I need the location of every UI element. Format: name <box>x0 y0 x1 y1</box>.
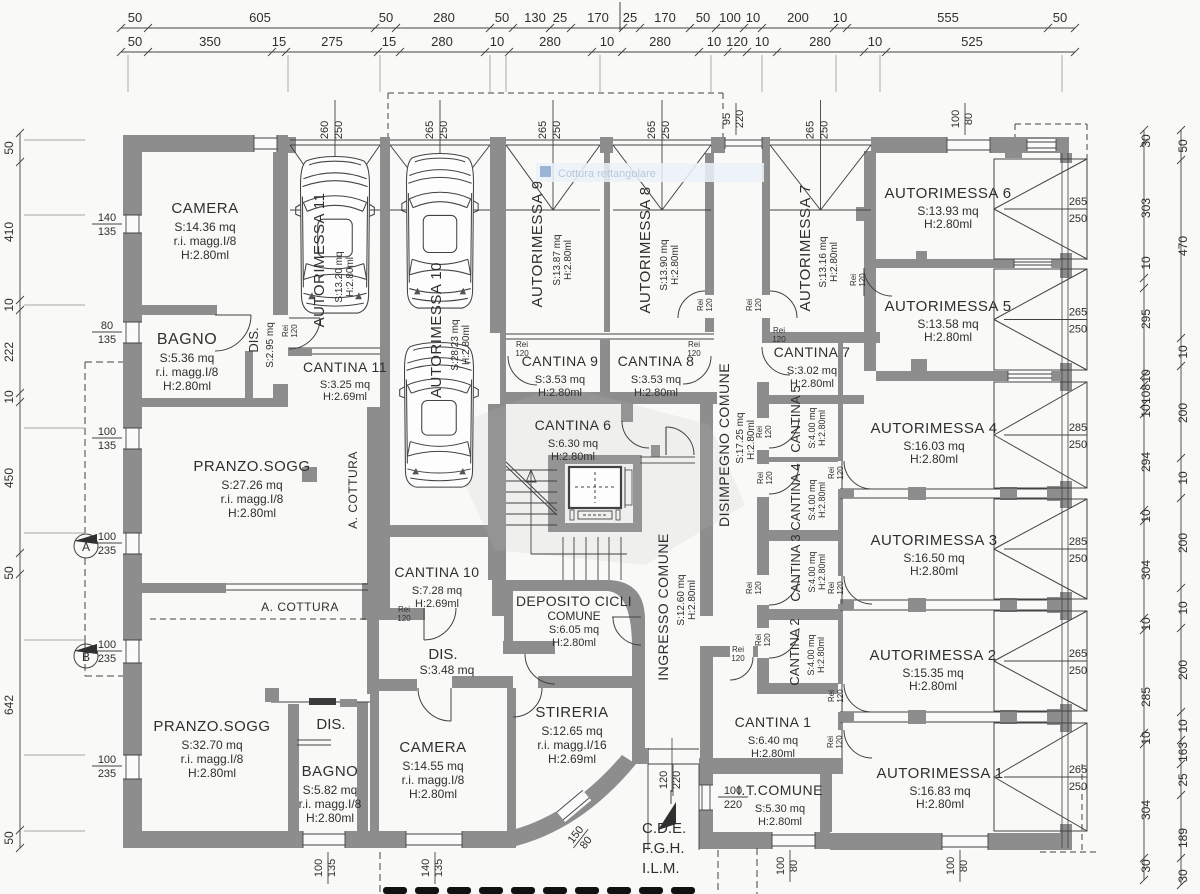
svg-text:H:2.80ml: H:2.80ml <box>829 242 840 282</box>
svg-text:H:2.80ml: H:2.80ml <box>228 506 276 520</box>
svg-text:CANTINA 11: CANTINA 11 <box>303 359 387 375</box>
svg-text:120: 120 <box>290 324 299 338</box>
svg-text:108: 108 <box>1139 384 1153 404</box>
svg-text:280: 280 <box>433 10 455 25</box>
svg-text:200: 200 <box>1176 533 1190 553</box>
svg-text:r.i. magg.I/8: r.i. magg.I/8 <box>299 797 362 811</box>
svg-text:10: 10 <box>2 298 16 312</box>
svg-text:Rei: Rei <box>754 634 763 646</box>
svg-text:Rei: Rei <box>849 274 858 286</box>
svg-text:Rei: Rei <box>398 605 410 614</box>
svg-text:H:2.80ml: H:2.80ml <box>538 387 582 399</box>
svg-text:AUTORIMESSA 7: AUTORIMESSA 7 <box>797 184 814 311</box>
svg-text:642: 642 <box>2 695 16 715</box>
svg-text:I.T.COMUNE: I.T.COMUNE <box>737 782 823 798</box>
svg-text:265: 265 <box>805 121 817 139</box>
svg-text:135: 135 <box>98 334 116 346</box>
svg-text:50: 50 <box>2 566 16 580</box>
svg-text:100: 100 <box>98 754 116 766</box>
svg-text:Rei: Rei <box>756 472 765 484</box>
svg-text:PRANZO.SOGG: PRANZO.SOGG <box>153 718 270 735</box>
svg-text:H:2.80ml: H:2.80ml <box>461 325 472 365</box>
svg-text:S:6.30 mq: S:6.30 mq <box>548 438 598 450</box>
svg-text:280: 280 <box>431 34 453 49</box>
svg-text:S:3.48 mq: S:3.48 mq <box>420 663 475 677</box>
svg-text:INGRESSO COMUNE: INGRESSO COMUNE <box>655 533 671 681</box>
svg-text:Rei: Rei <box>827 582 836 594</box>
svg-text:235: 235 <box>98 545 116 557</box>
svg-text:S:13.87 mq: S:13.87 mq <box>552 234 563 285</box>
svg-text:S:14.36 mq: S:14.36 mq <box>174 220 235 234</box>
svg-text:120: 120 <box>836 581 845 595</box>
svg-text:10: 10 <box>1176 471 1190 485</box>
svg-text:100: 100 <box>98 639 116 651</box>
svg-text:AUTORIMESSA 2: AUTORIMESSA 2 <box>869 647 996 664</box>
svg-text:STIRERIA: STIRERIA <box>535 704 608 721</box>
svg-text:10: 10 <box>490 34 504 49</box>
svg-text:S:14.55 mq: S:14.55 mq <box>402 759 463 773</box>
svg-text:250: 250 <box>551 121 563 139</box>
svg-text:250: 250 <box>1069 665 1087 677</box>
svg-text:r.i. magg.I/8: r.i. magg.I/8 <box>174 234 237 248</box>
svg-text:100: 100 <box>98 531 116 543</box>
svg-text:S:13.16 mq: S:13.16 mq <box>818 236 829 287</box>
svg-text:10: 10 <box>755 34 769 49</box>
svg-text:50: 50 <box>379 10 393 25</box>
svg-text:S:2.95 mq: S:2.95 mq <box>265 322 276 368</box>
svg-text:120: 120 <box>726 34 748 49</box>
svg-text:DEPOSITO CICLI: DEPOSITO CICLI <box>516 593 632 609</box>
svg-text:r.i. magg.I/16: r.i. magg.I/16 <box>537 738 607 752</box>
svg-text:H:2.69ml: H:2.69ml <box>548 752 596 766</box>
svg-text:30: 30 <box>1176 869 1190 883</box>
svg-text:S:3.02 mq: S:3.02 mq <box>787 365 837 377</box>
svg-text:350: 350 <box>199 34 221 49</box>
svg-text:H:2.80ml: H:2.80ml <box>817 410 827 446</box>
svg-text:S:7.28 mq: S:7.28 mq <box>412 585 462 597</box>
svg-text:25: 25 <box>623 10 637 25</box>
svg-text:50: 50 <box>1053 10 1067 25</box>
svg-text:275: 275 <box>321 34 343 49</box>
svg-text:r.i. magg.I/8: r.i. magg.I/8 <box>181 752 244 766</box>
svg-text:80: 80 <box>101 320 113 332</box>
svg-text:H:2.80ml: H:2.80ml <box>910 564 958 578</box>
svg-text:CANTINA 9: CANTINA 9 <box>522 353 599 369</box>
svg-text:H:2.80ml: H:2.80ml <box>409 787 457 801</box>
svg-text:A. COTTURA: A. COTTURA <box>261 600 339 614</box>
svg-text:H:2.80ml: H:2.80ml <box>924 330 972 344</box>
svg-text:BAGNO: BAGNO <box>157 331 217 348</box>
svg-text:250: 250 <box>660 121 672 139</box>
svg-text:140: 140 <box>420 859 432 877</box>
svg-text:Rei: Rei <box>281 325 290 337</box>
svg-text:120: 120 <box>397 614 411 623</box>
svg-text:AUTORIMESSA 4: AUTORIMESSA 4 <box>870 420 997 437</box>
svg-text:120: 120 <box>658 771 670 789</box>
svg-text:CANTINA 1: CANTINA 1 <box>735 714 812 730</box>
svg-text:220: 220 <box>724 799 742 811</box>
svg-text:285: 285 <box>1069 536 1087 548</box>
svg-text:H:2.80ml: H:2.80ml <box>817 482 827 518</box>
svg-text:BAGNO: BAGNO <box>302 763 359 780</box>
svg-text:250: 250 <box>1069 553 1087 565</box>
svg-text:S:3.25 mq: S:3.25 mq <box>320 379 370 391</box>
svg-text:30: 30 <box>1139 134 1153 148</box>
svg-text:Rei: Rei <box>773 326 785 335</box>
svg-text:DIS.: DIS. <box>428 646 457 663</box>
svg-text:CANTINA 8: CANTINA 8 <box>618 353 695 369</box>
svg-text:S:13.58 mq: S:13.58 mq <box>917 317 978 331</box>
svg-text:H:2.80ml: H:2.80ml <box>817 554 827 590</box>
svg-text:H:2.80ml: H:2.80ml <box>909 679 957 693</box>
svg-text:Rei: Rei <box>688 340 700 349</box>
svg-text:235: 235 <box>98 653 116 665</box>
svg-text:235: 235 <box>98 768 116 780</box>
svg-text:140: 140 <box>98 212 116 224</box>
svg-text:25: 25 <box>553 10 567 25</box>
svg-text:B: B <box>82 650 90 664</box>
svg-text:10: 10 <box>2 390 16 404</box>
svg-text:S:3.53 mq: S:3.53 mq <box>631 374 681 386</box>
svg-text:Rei: Rei <box>826 736 835 748</box>
svg-text:AUTORIMESSA 5: AUTORIMESSA 5 <box>884 298 1011 315</box>
svg-text:120: 120 <box>705 298 714 312</box>
svg-text:A: A <box>82 540 90 554</box>
svg-text:Rei: Rei <box>827 690 836 702</box>
svg-text:H:2.80ml: H:2.80ml <box>563 240 574 280</box>
svg-text:265: 265 <box>1069 764 1087 776</box>
svg-text:10: 10 <box>1139 731 1153 745</box>
svg-text:S:5.82 mq: S:5.82 mq <box>303 783 358 797</box>
svg-text:S:15.35 mq: S:15.35 mq <box>902 666 963 680</box>
svg-text:163: 163 <box>1176 742 1190 762</box>
svg-text:r.i. magg.I/8: r.i. magg.I/8 <box>221 492 284 506</box>
svg-text:S:4.00 mq: S:4.00 mq <box>806 634 816 675</box>
svg-text:CAMERA: CAMERA <box>171 200 238 217</box>
svg-text:120: 120 <box>754 298 763 312</box>
svg-text:S:12.60 mq: S:12.60 mq <box>676 574 687 625</box>
svg-text:S:13.90 mq: S:13.90 mq <box>659 239 670 290</box>
svg-text:10: 10 <box>1139 256 1153 270</box>
svg-text:265: 265 <box>1069 648 1087 660</box>
svg-text:280: 280 <box>539 34 561 49</box>
svg-text:CANTINA 3: CANTINA 3 <box>788 534 803 601</box>
svg-text:S:4.00 mq: S:4.00 mq <box>807 551 817 592</box>
svg-text:H:2.80ml: H:2.80ml <box>910 452 958 466</box>
svg-text:280: 280 <box>649 34 671 49</box>
svg-text:H:2.80ml: H:2.80ml <box>181 248 229 262</box>
svg-text:CANTINA 5: CANTINA 5 <box>788 385 803 452</box>
svg-text:S:6.05 mq: S:6.05 mq <box>549 624 599 636</box>
svg-text:120: 120 <box>836 466 845 480</box>
svg-text:Rei: Rei <box>696 299 705 311</box>
svg-text:10: 10 <box>1139 404 1153 418</box>
svg-text:AUTORIMESSA 10: AUTORIMESSA 10 <box>428 262 445 398</box>
svg-text:200: 200 <box>787 10 809 25</box>
svg-text:135: 135 <box>98 440 116 452</box>
svg-text:100: 100 <box>98 426 116 438</box>
svg-text:COMUNE: COMUNE <box>547 609 600 623</box>
svg-text:H:2.80ml: H:2.80ml <box>551 451 595 463</box>
svg-text:S:13.20 mq: S:13.20 mq <box>334 251 345 302</box>
svg-text:250: 250 <box>438 121 450 139</box>
svg-text:265: 265 <box>646 121 658 139</box>
svg-text:r.i. magg.I/8: r.i. magg.I/8 <box>402 773 465 787</box>
svg-text:10: 10 <box>1139 369 1153 383</box>
svg-text:10: 10 <box>1176 719 1190 733</box>
svg-text:450: 450 <box>2 468 16 488</box>
svg-text:S:16.03 mq: S:16.03 mq <box>903 439 964 453</box>
svg-text:120: 120 <box>772 335 786 344</box>
svg-text:15: 15 <box>272 34 286 49</box>
svg-text:250: 250 <box>819 121 831 139</box>
svg-text:120: 120 <box>836 689 845 703</box>
svg-text:10: 10 <box>1176 345 1190 359</box>
svg-text:285: 285 <box>1069 422 1087 434</box>
svg-text:605: 605 <box>249 10 271 25</box>
svg-text:Rei: Rei <box>732 645 744 654</box>
svg-text:250: 250 <box>1069 439 1087 451</box>
svg-text:30: 30 <box>1139 859 1153 873</box>
svg-text:S:5.36 mq: S:5.36 mq <box>160 351 215 365</box>
svg-text:r.i. magg.I/8: r.i. magg.I/8 <box>156 365 219 379</box>
svg-text:S:3.53 mq: S:3.53 mq <box>535 374 585 386</box>
svg-text:H:2.69ml: H:2.69ml <box>323 391 367 403</box>
svg-text:CANTINA 2: CANTINA 2 <box>787 618 802 685</box>
svg-text:Rei: Rei <box>827 467 836 479</box>
svg-text:Rei: Rei <box>745 299 754 311</box>
svg-text:170: 170 <box>654 10 676 25</box>
svg-text:50: 50 <box>1176 139 1190 153</box>
svg-text:H:2.80ml: H:2.80ml <box>188 766 236 780</box>
svg-text:50: 50 <box>128 10 142 25</box>
svg-text:H:2.69ml: H:2.69ml <box>415 598 459 610</box>
svg-text:130: 130 <box>524 10 546 25</box>
svg-text:CANTINA 6: CANTINA 6 <box>535 417 612 433</box>
svg-text:265: 265 <box>1069 307 1087 319</box>
svg-text:170: 170 <box>587 10 609 25</box>
svg-text:10: 10 <box>1176 601 1190 615</box>
svg-text:260: 260 <box>319 121 331 139</box>
svg-text:250: 250 <box>1069 213 1087 225</box>
svg-text:265: 265 <box>537 121 549 139</box>
svg-text:120: 120 <box>858 273 867 287</box>
svg-text:50: 50 <box>2 141 16 155</box>
svg-text:S:6.40 mq: S:6.40 mq <box>748 735 798 747</box>
svg-text:H:2.80ml: H:2.80ml <box>552 637 596 649</box>
svg-text:I.L.M.: I.L.M. <box>642 860 680 877</box>
svg-text:S:16.50 mq: S:16.50 mq <box>903 551 964 565</box>
svg-text:S:28.23 mq: S:28.23 mq <box>450 319 461 370</box>
svg-text:100: 100 <box>950 110 962 128</box>
svg-text:AUTORIMESSA 3: AUTORIMESSA 3 <box>870 532 997 549</box>
svg-text:10: 10 <box>600 34 614 49</box>
svg-text:S:27.26 mq: S:27.26 mq <box>221 478 282 492</box>
svg-text:H:2.80ml: H:2.80ml <box>345 257 356 297</box>
svg-text:295: 295 <box>1139 309 1153 329</box>
svg-text:AUTORIMESSA 6: AUTORIMESSA 6 <box>884 185 1011 202</box>
svg-text:DIS.: DIS. <box>316 716 345 733</box>
svg-text:PRANZO.SOGG: PRANZO.SOGG <box>193 458 310 475</box>
svg-text:AUTORIMESSA 11: AUTORIMESSA 11 <box>311 193 328 328</box>
svg-text:H:2.80ml: H:2.80ml <box>751 748 795 760</box>
svg-text:CANTINA 10: CANTINA 10 <box>394 564 479 580</box>
svg-text:304: 304 <box>1139 800 1153 820</box>
svg-text:DIS.: DIS. <box>246 327 261 352</box>
svg-text:100: 100 <box>945 857 957 875</box>
svg-text:S:17.25 mq: S:17.25 mq <box>735 412 746 463</box>
svg-text:AUTORIMESSA 1: AUTORIMESSA 1 <box>876 765 1003 782</box>
svg-text:120: 120 <box>731 654 745 663</box>
svg-text:Cottura rettangolare: Cottura rettangolare <box>558 168 656 180</box>
svg-text:294: 294 <box>1139 452 1153 472</box>
svg-text:Rei: Rei <box>516 340 528 349</box>
svg-text:10: 10 <box>707 34 721 49</box>
svg-text:F.G.H.: F.G.H. <box>642 840 685 857</box>
svg-text:200: 200 <box>1176 660 1190 680</box>
svg-text:120: 120 <box>754 581 763 595</box>
svg-text:304: 304 <box>1139 560 1153 580</box>
svg-text:S:16.83 mq: S:16.83 mq <box>909 784 970 798</box>
svg-text:250: 250 <box>333 121 345 139</box>
svg-text:100: 100 <box>775 857 787 875</box>
svg-text:S:4.00 mq: S:4.00 mq <box>807 479 817 520</box>
svg-text:222: 222 <box>2 342 16 362</box>
svg-text:189: 189 <box>1176 828 1190 848</box>
svg-text:50: 50 <box>128 34 142 49</box>
svg-text:25: 25 <box>1176 773 1190 787</box>
svg-text:120: 120 <box>764 425 773 439</box>
svg-text:10: 10 <box>1139 617 1153 631</box>
svg-text:A. COTTURA: A. COTTURA <box>346 451 360 529</box>
svg-text:H:2.80ml: H:2.80ml <box>916 797 964 811</box>
svg-text:100: 100 <box>719 10 741 25</box>
svg-text:200: 200 <box>1176 403 1190 423</box>
svg-text:120: 120 <box>763 633 772 647</box>
svg-text:10: 10 <box>1139 509 1153 523</box>
svg-text:250: 250 <box>1069 781 1087 793</box>
svg-text:50: 50 <box>495 10 509 25</box>
svg-text:120: 120 <box>835 735 844 749</box>
svg-text:H:2.80ml: H:2.80ml <box>746 420 757 460</box>
svg-text:470: 470 <box>1176 236 1190 256</box>
svg-text:S:12.65 mq: S:12.65 mq <box>541 724 602 738</box>
svg-text:303: 303 <box>1139 198 1153 218</box>
svg-text:265: 265 <box>424 121 436 139</box>
svg-text:250: 250 <box>1069 324 1087 336</box>
svg-text:10: 10 <box>868 34 882 49</box>
svg-text:CANTINA 7: CANTINA 7 <box>774 344 851 360</box>
svg-text:H:2.80ml: H:2.80ml <box>924 217 972 231</box>
svg-text:H:2.80ml: H:2.80ml <box>758 816 802 828</box>
svg-text:285: 285 <box>1139 687 1153 707</box>
svg-text:H:2.80ml: H:2.80ml <box>816 637 826 673</box>
svg-text:H:2.80ml: H:2.80ml <box>670 245 681 285</box>
svg-text:15: 15 <box>382 34 396 49</box>
svg-text:S:32.70 mq: S:32.70 mq <box>181 738 242 752</box>
svg-text:H:2.80ml: H:2.80ml <box>634 387 678 399</box>
svg-text:S:4.00 mq: S:4.00 mq <box>807 407 817 448</box>
svg-text:265: 265 <box>1069 196 1087 208</box>
svg-text:120: 120 <box>765 471 774 485</box>
svg-text:AUTORIMESSA 8: AUTORIMESSA 8 <box>637 186 654 313</box>
svg-text:S:13.93 mq: S:13.93 mq <box>917 204 978 218</box>
svg-text:10: 10 <box>746 10 760 25</box>
svg-text:Rei: Rei <box>745 582 754 594</box>
svg-text:H:2.80ml: H:2.80ml <box>306 811 354 825</box>
svg-text:CAMERA: CAMERA <box>399 739 466 756</box>
svg-text:10: 10 <box>833 10 847 25</box>
svg-text:100: 100 <box>313 859 325 877</box>
svg-text:280: 280 <box>809 34 831 49</box>
svg-text:135: 135 <box>98 226 116 238</box>
svg-text:50: 50 <box>2 831 16 845</box>
svg-text:H:2.80ml: H:2.80ml <box>687 580 698 620</box>
svg-text:410: 410 <box>2 222 16 242</box>
svg-text:CANTINA 4: CANTINA 4 <box>788 463 803 530</box>
svg-text:555: 555 <box>937 10 959 25</box>
svg-text:DISIMPEGNO COMUNE: DISIMPEGNO COMUNE <box>716 363 732 527</box>
svg-text:50: 50 <box>696 10 710 25</box>
svg-text:H:2.80ml: H:2.80ml <box>163 379 211 393</box>
svg-text:AUTORIMESSA 9: AUTORIMESSA 9 <box>529 180 546 307</box>
svg-text:S:5.30 mq: S:5.30 mq <box>755 803 805 815</box>
svg-text:525: 525 <box>961 34 983 49</box>
